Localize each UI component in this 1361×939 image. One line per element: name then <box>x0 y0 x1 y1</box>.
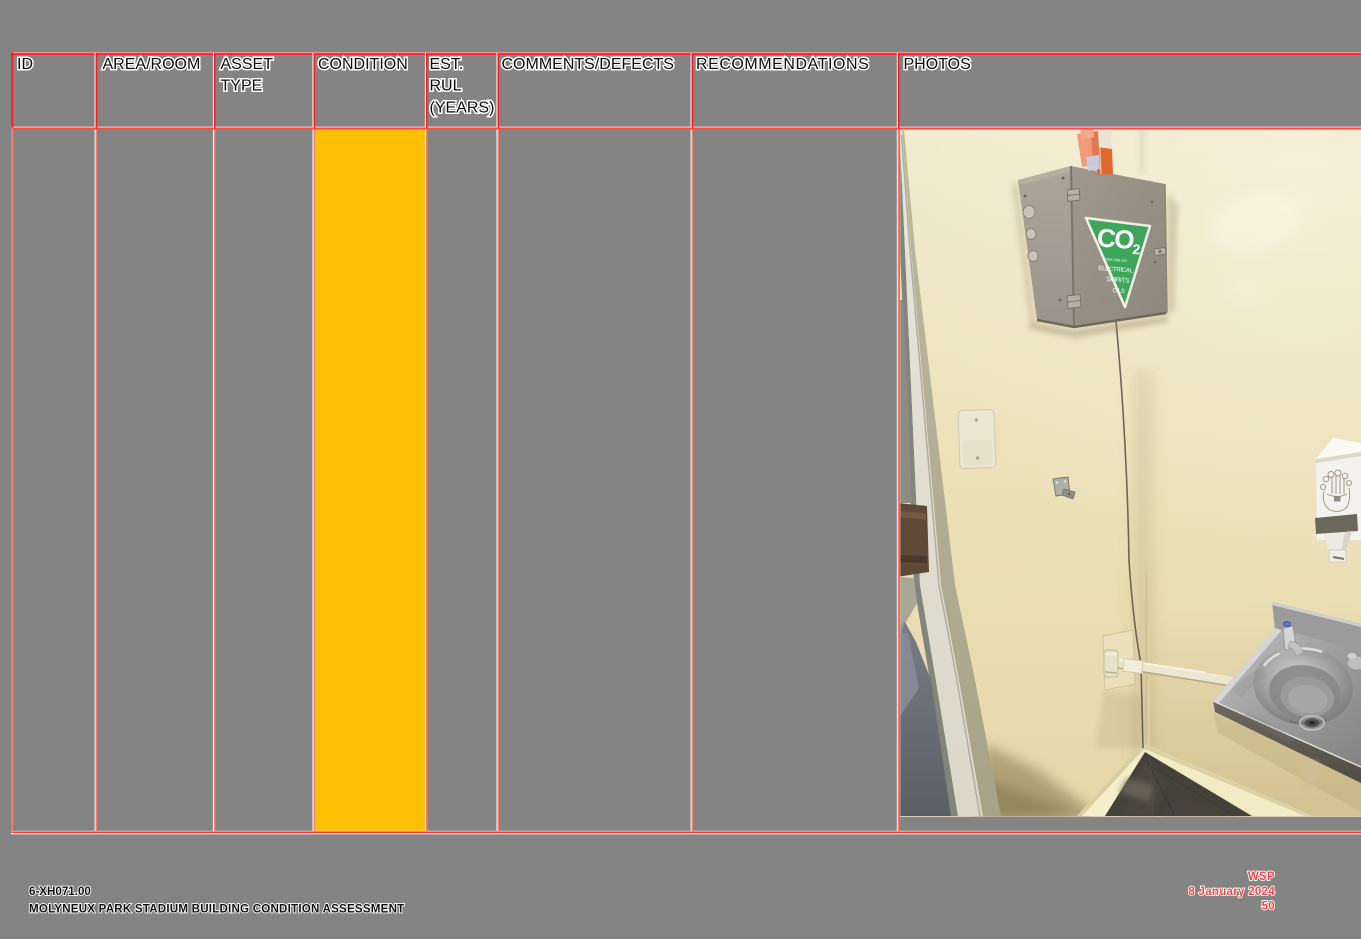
svg-text:COMMENTS/DEFECTS: COMMENTS/DEFECTS <box>502 56 674 73</box>
svg-text:TYPE: TYPE <box>221 78 263 95</box>
svg-text:RECOMMENDATIONS: RECOMMENDATIONS <box>696 56 869 73</box>
svg-text:WSP: WSP <box>1248 871 1275 883</box>
svg-text:ID: ID <box>17 56 33 73</box>
svg-text:50: 50 <box>1262 901 1275 913</box>
svg-text:OILS: OILS <box>1112 288 1125 295</box>
svg-text:6-XH071.00: 6-XH071.00 <box>29 885 91 898</box>
svg-text:MOLYNEUX PARK STADIUM BUILDING: MOLYNEUX PARK STADIUM BUILDING CONDITION… <box>29 903 404 916</box>
svg-text:AREA/ROOM: AREA/ROOM <box>103 56 201 73</box>
svg-text:EST.: EST. <box>430 56 464 73</box>
svg-text:RUL: RUL <box>430 78 462 95</box>
svg-text:ASSET: ASSET <box>221 56 274 73</box>
svg-text:PHOTOS: PHOTOS <box>904 56 971 73</box>
svg-text:8 January 2024: 8 January 2024 <box>1188 886 1275 898</box>
svg-text:(YEARS): (YEARS) <box>430 99 495 116</box>
svg-text:CONDITION: CONDITION <box>318 56 408 73</box>
